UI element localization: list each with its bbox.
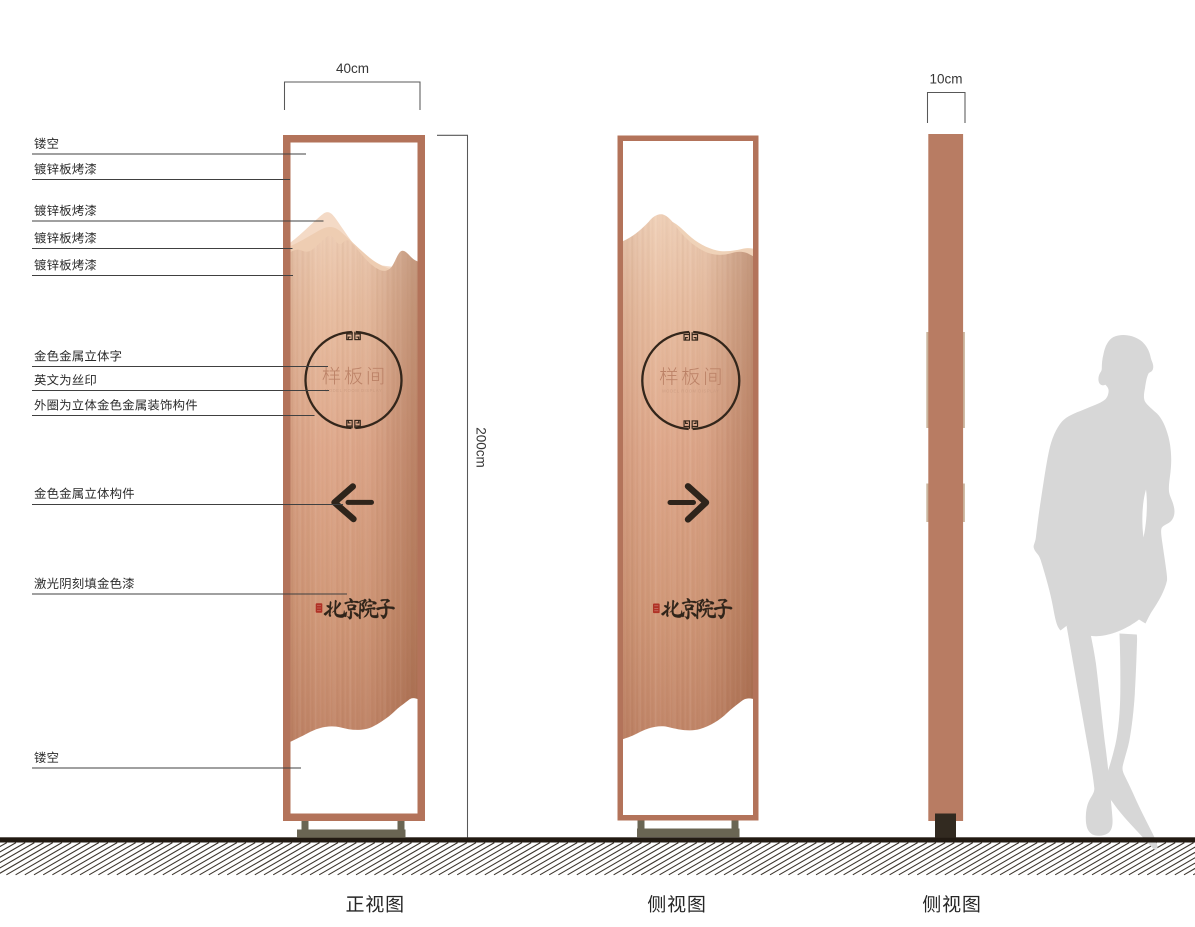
- svg-text:40cm: 40cm: [336, 61, 369, 76]
- svg-text:200cm: 200cm: [474, 427, 489, 468]
- svg-text:MODEL ROOM DISPLAY: MODEL ROOM DISPLAY: [325, 388, 382, 393]
- svg-text:10cm: 10cm: [929, 72, 962, 87]
- svg-text:MODEL ROOM DISPLAY: MODEL ROOM DISPLAY: [662, 389, 719, 394]
